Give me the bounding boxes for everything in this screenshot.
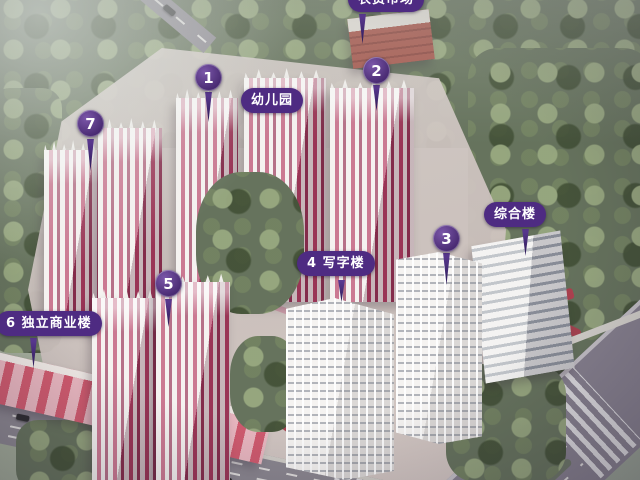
badge-office-label: 4 写字楼 <box>307 256 365 271</box>
marker-1: 1 <box>195 64 222 91</box>
badge-commercial: 6 独立商业楼 <box>0 311 102 336</box>
badge-market-label: 农贸市场 <box>358 0 414 7</box>
marker-1-number: 1 <box>203 69 213 87</box>
badge-kindergarten: 幼儿园 <box>241 88 303 113</box>
marker-7-number: 7 <box>85 115 95 133</box>
marker-2: 2 <box>363 57 390 84</box>
badge-market: 农贸市场 <box>348 0 424 12</box>
marker-5: 5 <box>155 270 182 297</box>
badge-complex: 综合楼 <box>484 202 546 227</box>
marker-2-number: 2 <box>371 62 381 80</box>
badge-kindergarten-label: 幼儿园 <box>251 93 293 108</box>
photo-vignette <box>0 0 640 480</box>
site-plan-photo: 1 2 3 5 7 农贸市场 幼儿园 综合楼 4 写字楼 6 独立商业楼 <box>0 0 640 480</box>
badge-commercial-label: 6 独立商业楼 <box>6 316 92 331</box>
marker-7: 7 <box>77 110 104 137</box>
marker-5-number: 5 <box>163 275 173 293</box>
badge-office: 4 写字楼 <box>297 251 375 276</box>
marker-3-number: 3 <box>441 230 451 248</box>
badge-complex-label: 综合楼 <box>494 207 536 222</box>
marker-3: 3 <box>433 225 460 252</box>
